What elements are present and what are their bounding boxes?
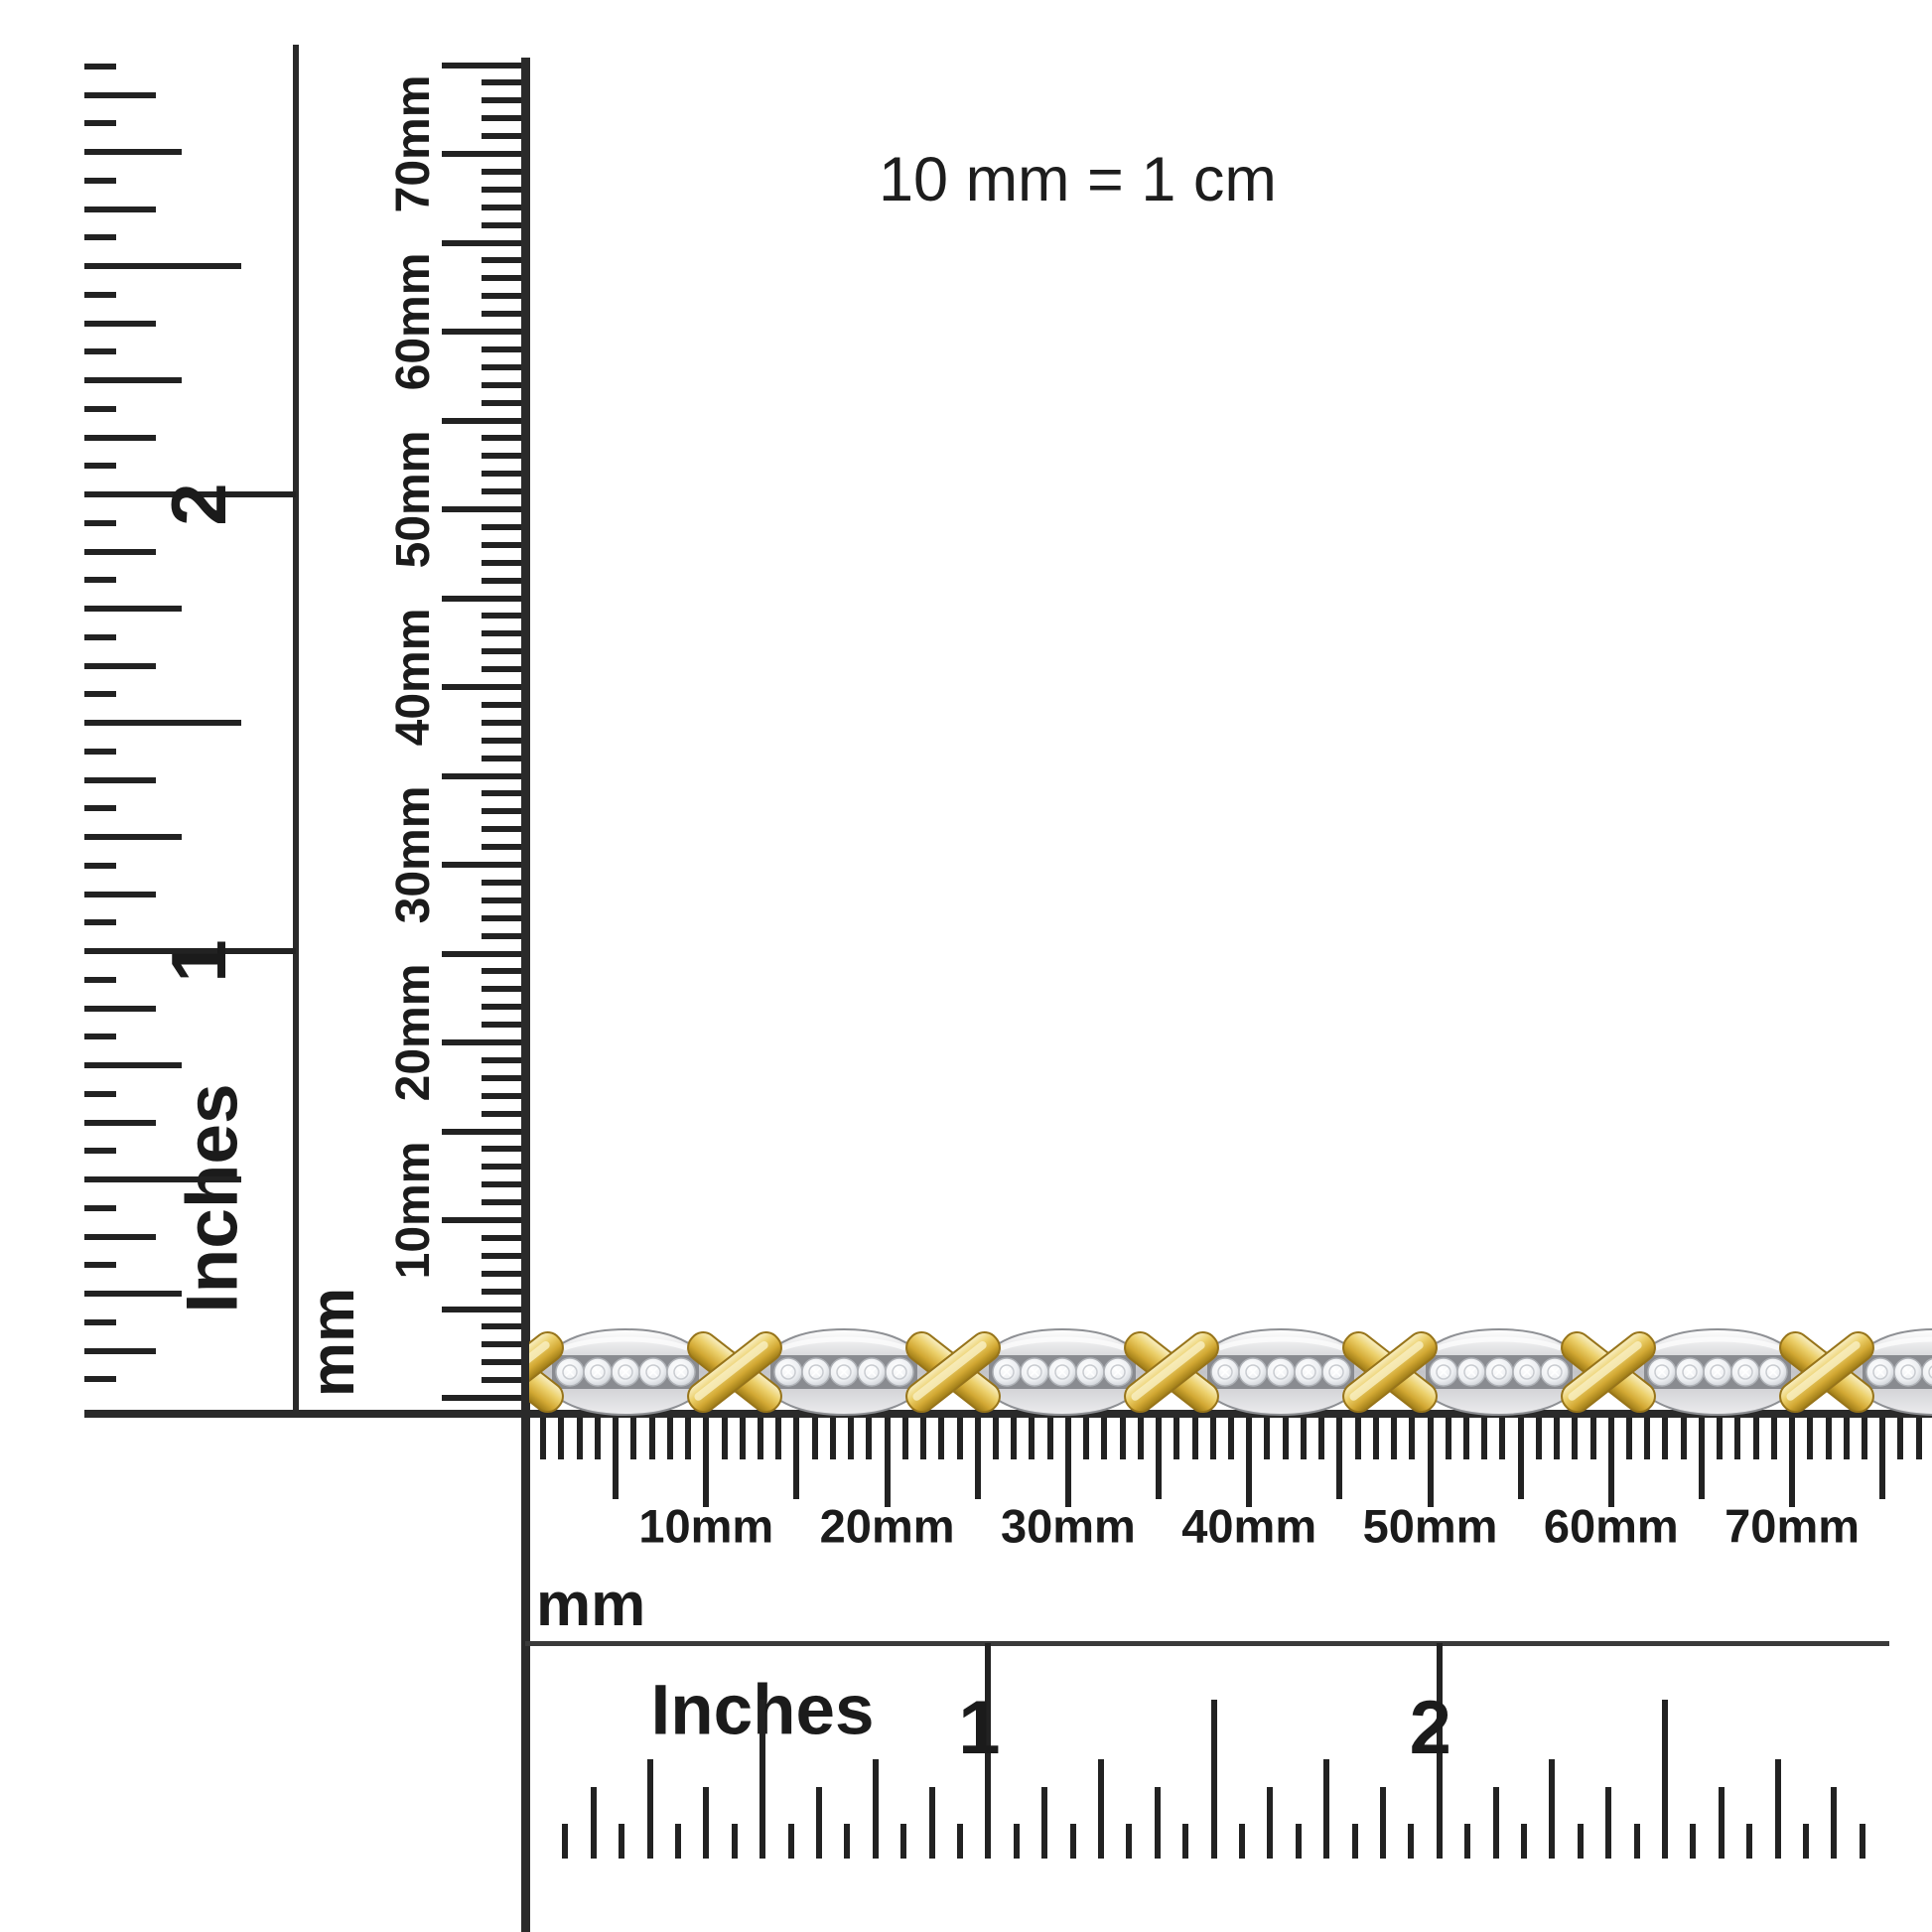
bracelet-image	[0, 0, 1932, 1932]
measurement-diagram: 10 mm = 1 cm Inches mm mm Inches 12 10mm…	[0, 0, 1932, 1932]
